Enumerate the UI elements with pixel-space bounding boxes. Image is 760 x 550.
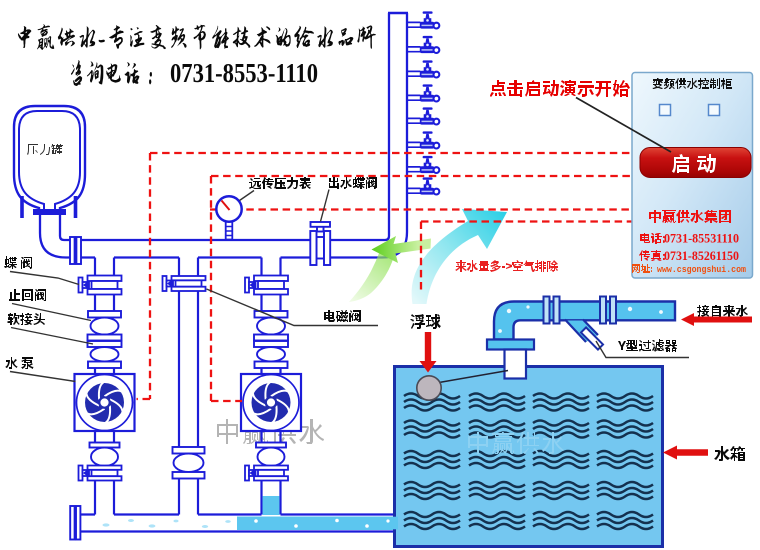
- svg-text:www.csgongshui.com: www.csgongshui.com: [657, 264, 746, 275]
- svg-text:0731-8553-1110: 0731-8553-1110: [170, 58, 318, 88]
- svg-text:0731-85531110: 0731-85531110: [664, 232, 739, 246]
- svg-text:0731-85261150: 0731-85261150: [664, 249, 739, 263]
